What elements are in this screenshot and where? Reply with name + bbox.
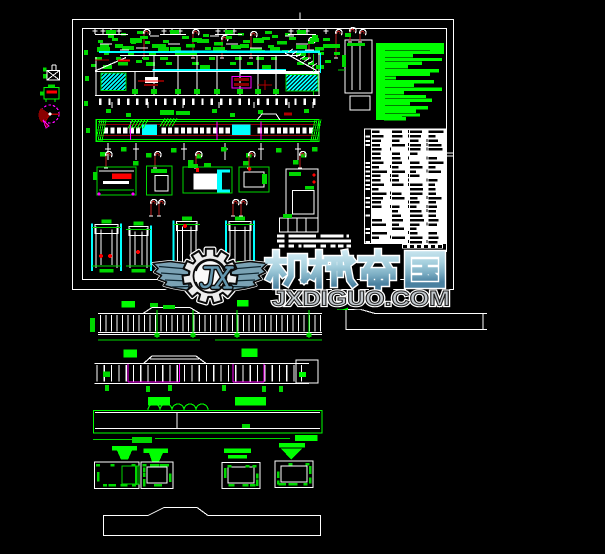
svg-text:JXDIGUO.COM: JXDIGUO.COM	[272, 288, 450, 311]
